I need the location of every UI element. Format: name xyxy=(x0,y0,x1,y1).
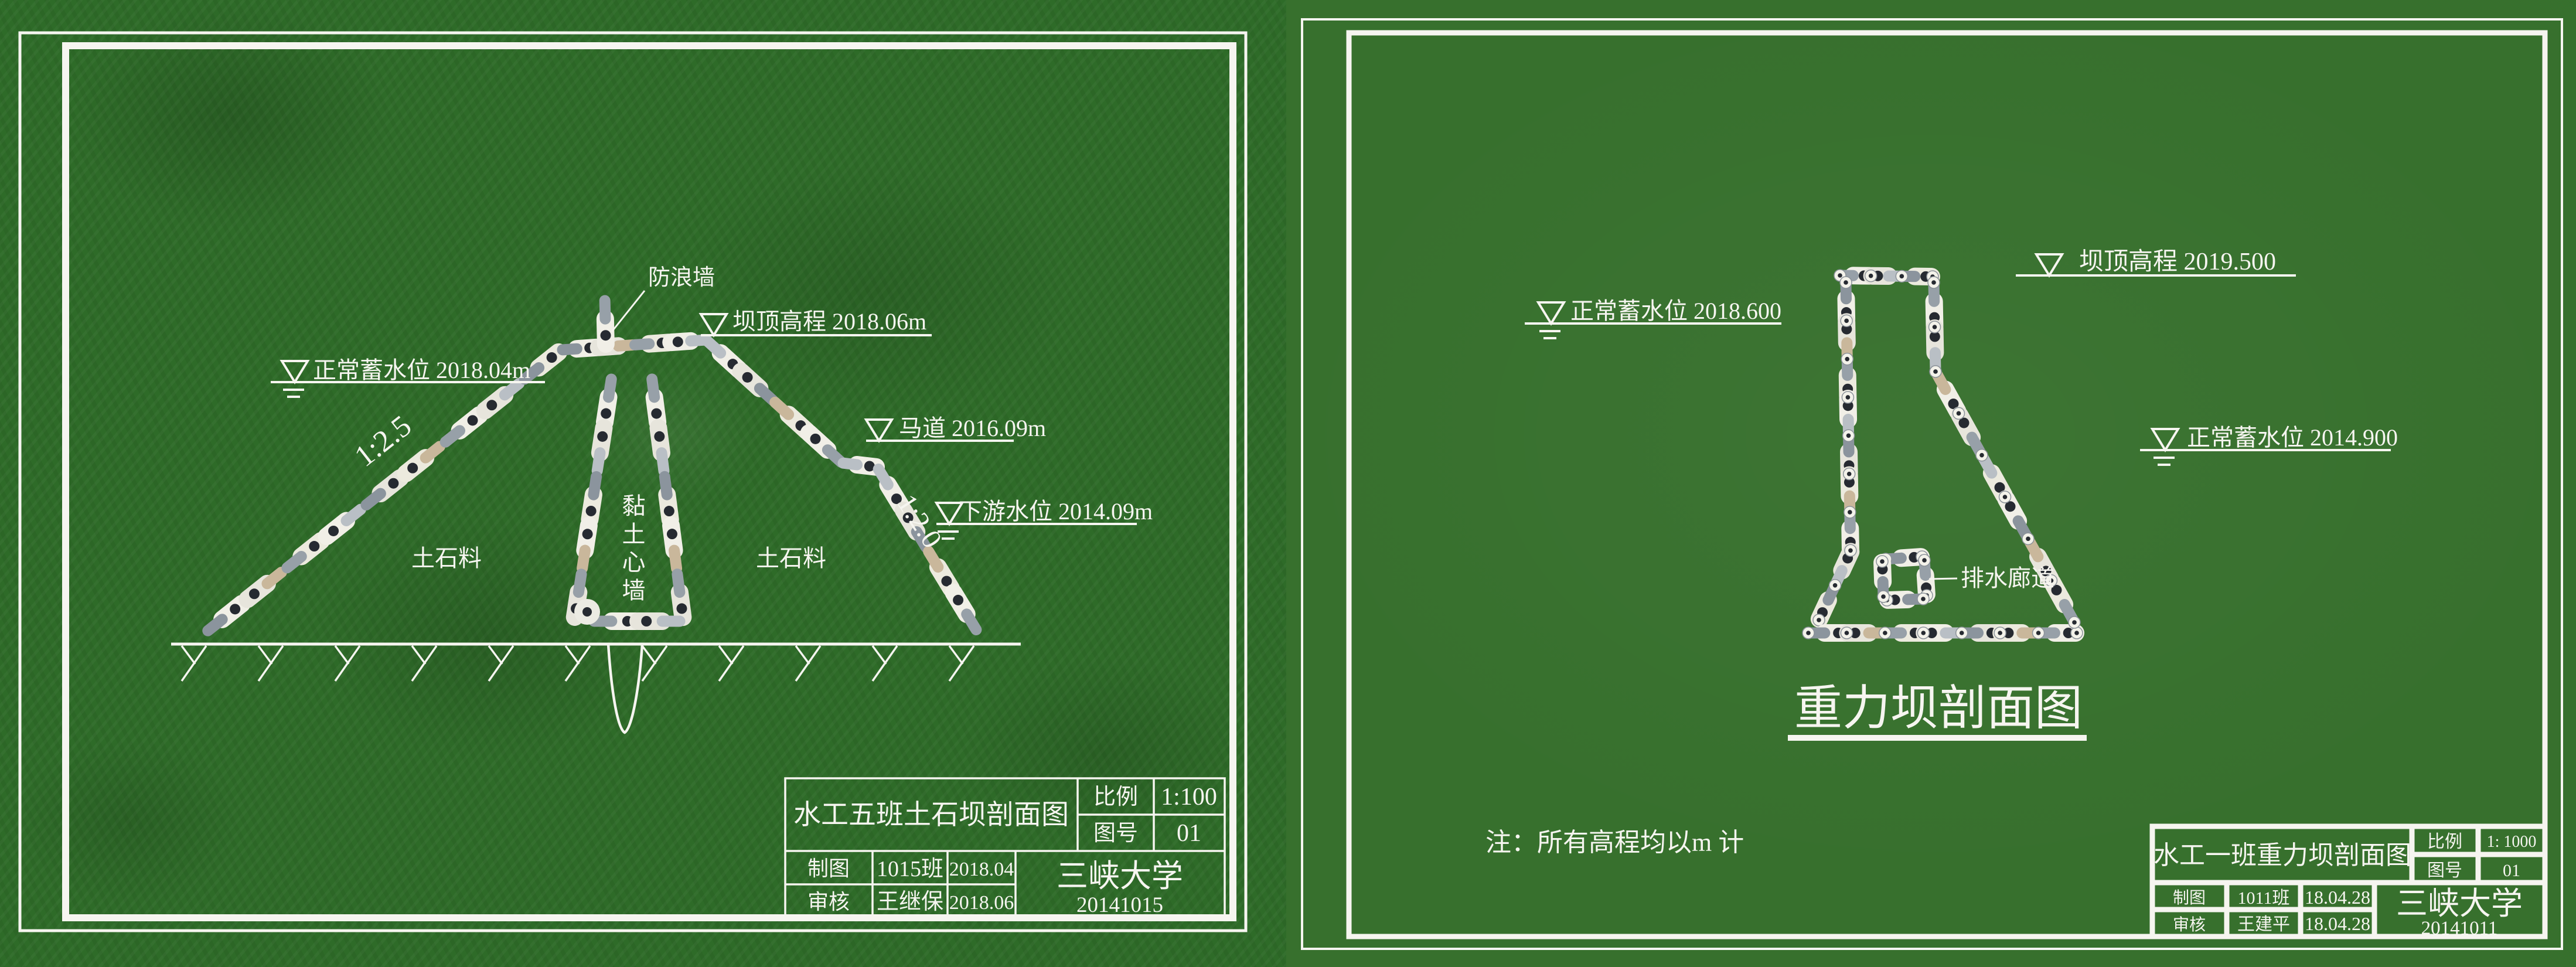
drafted-label-right: 制图 xyxy=(2173,888,2206,907)
water-level-symbol-upstream-right: 正常蓄水位 2018.600 xyxy=(1525,298,1781,338)
water-level-symbol-crest-right: 坝顶高程 2019.500 xyxy=(2016,248,2296,275)
grout-curtain xyxy=(608,644,642,733)
crest-elevation-label: 坝顶高程 2018.06m xyxy=(732,308,926,335)
sheet-no-value-right: 01 xyxy=(2503,861,2520,880)
crest-elevation-label-right: 坝顶高程 2019.500 xyxy=(2079,248,2276,275)
water-level-symbol-berm: 马道 2016.09m xyxy=(866,415,1046,441)
left-title-block: 水工五班土石坝剖面图 比例 1:100 图号 01 制图 1015班 2018.… xyxy=(785,778,1225,918)
ground-hatch-marks xyxy=(182,646,974,681)
left-sheet-frame xyxy=(20,33,1246,931)
drainage-gallery-callout: 排水廊道 xyxy=(1929,565,2054,591)
checked-label-right: 审核 xyxy=(2173,915,2206,934)
shell-material-left-label: 土石料 xyxy=(411,545,482,571)
organization-no-right: 20141011 xyxy=(2421,918,2498,939)
right-drawing-title: 水工一班重力坝剖面图 xyxy=(2154,841,2411,870)
left-annotations: 防浪墙 坝顶高程 2018.06m 正常蓄水位 2018.04m 马道 2016… xyxy=(271,265,1153,606)
earth-rock-dam-human-outline xyxy=(208,301,976,631)
scale-label-right: 比例 xyxy=(2427,832,2462,852)
scale-value-right: 1: 1000 xyxy=(2487,833,2537,851)
checked-label: 审核 xyxy=(807,890,850,914)
drafted-by: 1015班 xyxy=(877,857,943,881)
downstream-water-level-label: 下游水位 2014.09m xyxy=(959,498,1153,525)
drafted-label: 制图 xyxy=(807,857,850,880)
photo-composite: 防浪墙 坝顶高程 2018.06m 正常蓄水位 2018.04m 马道 2016… xyxy=(0,0,2576,967)
wave-wall-label: 防浪墙 xyxy=(648,265,715,290)
downstream-water-level-label-right: 正常蓄水位 2014.900 xyxy=(2187,424,2398,451)
normal-water-level-label: 正常蓄水位 2018.04m xyxy=(313,357,530,383)
right-title-block: 水工一班重力坝剖面图 比例 1: 1000 图号 01 制图 1011班 18.… xyxy=(2152,826,2545,939)
figure-title-underline xyxy=(1788,735,2087,741)
scale-value: 1:100 xyxy=(1161,784,1217,811)
water-level-symbol-downstream: 下游水位 2014.09m xyxy=(936,498,1153,539)
berm-label: 马道 2016.09m xyxy=(899,415,1046,441)
scale-label: 比例 xyxy=(1093,785,1138,809)
checked-by-right: 王建平 xyxy=(2237,915,2290,934)
organization: 三峡大学 xyxy=(1057,859,1183,894)
shell-material-right-label: 土石料 xyxy=(756,545,826,571)
checked-date-right: 18.04.28 xyxy=(2305,913,2370,934)
drafted-date-right: 18.04.28 xyxy=(2305,887,2370,908)
elevation-note: 注：所有高程均以m 计 xyxy=(1485,828,1744,857)
sheet-no-label-right: 图号 xyxy=(2427,861,2462,880)
water-level-symbol-crest: 坝顶高程 2018.06m xyxy=(701,308,932,335)
upstream-water-level-label-right: 正常蓄水位 2018.600 xyxy=(1570,298,1781,324)
organization-right: 三峡大学 xyxy=(2396,886,2523,921)
drainage-gallery-label: 排水廊道 xyxy=(1961,565,2054,591)
right-sheet-frame xyxy=(1302,19,2562,949)
sheet-no-value: 01 xyxy=(1177,820,1201,847)
organization-no: 20141015 xyxy=(1076,893,1163,917)
clay-core-label: 黏土心墙 xyxy=(619,493,645,606)
wave-wall-callout: 防浪墙 xyxy=(612,265,715,332)
drafted-date: 2018.04 xyxy=(949,859,1014,880)
drafted-by-right: 1011班 xyxy=(2238,888,2290,908)
drawing-overlay: 防浪墙 坝顶高程 2018.06m 正常蓄水位 2018.04m 马道 2016… xyxy=(0,0,2576,967)
left-drawing-title: 水工五班土石坝剖面图 xyxy=(793,800,1069,830)
checked-date: 2018.06 xyxy=(949,892,1014,914)
checked-by: 王继保 xyxy=(877,890,943,914)
water-level-symbol-downstream-right: 正常蓄水位 2014.900 xyxy=(2140,424,2398,465)
figure-title: 重力坝剖面图 xyxy=(1794,682,2083,735)
sheet-no-label: 图号 xyxy=(1093,821,1138,846)
